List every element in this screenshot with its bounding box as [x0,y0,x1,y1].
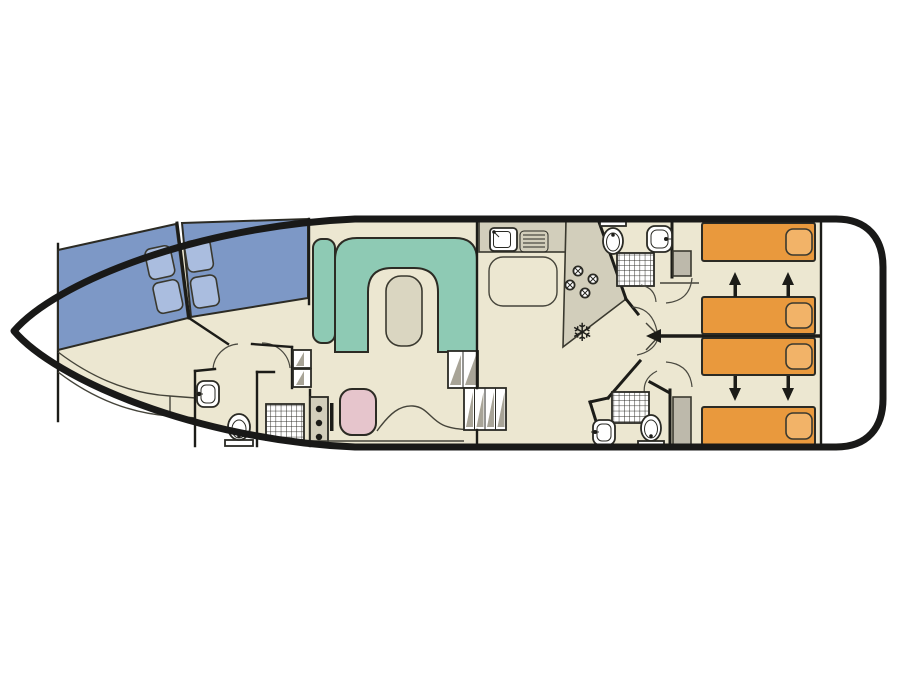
sink-tap-dot [492,230,496,234]
stern-deck [821,222,880,444]
pillow [786,229,812,255]
toilet-bowl [603,228,623,254]
arrow-up [734,284,738,297]
wardrobe [673,251,691,276]
boat-floorplan-canvas: ❄ [0,0,901,676]
floorplan-svg: ❄ [0,0,901,676]
sofa-arm [313,239,335,343]
aft-beds [702,223,815,445]
console-knob [316,420,322,426]
shower-grid [266,404,304,440]
pillow [190,274,221,309]
saloon-table [386,276,422,346]
steering-wheel [330,403,334,431]
companionway-steps-upper [448,351,478,388]
bow-deck [14,244,58,421]
console-knob [316,434,322,440]
shower-grid [617,253,654,286]
helm-seat [340,389,376,435]
washbasin [195,381,219,407]
wardrobe [673,397,691,446]
toilet-dot [649,434,653,438]
pillow [786,413,812,439]
arrow-down [734,376,738,389]
shower [266,404,304,440]
washbasin-tap-dot [593,430,597,434]
side-steps [293,350,311,387]
arrow-up [787,284,791,297]
fridge-snowflake-icon: ❄ [572,318,593,347]
arrow-down [787,376,791,389]
pillow [152,279,184,315]
console-knob [316,406,322,412]
washbasin-tap-dot [664,237,668,241]
pillow [786,303,812,328]
pillow [786,344,812,369]
toilet-dot [611,233,615,237]
washbasin-tap-dot [197,392,201,396]
companionway-steps-lower [464,388,506,430]
